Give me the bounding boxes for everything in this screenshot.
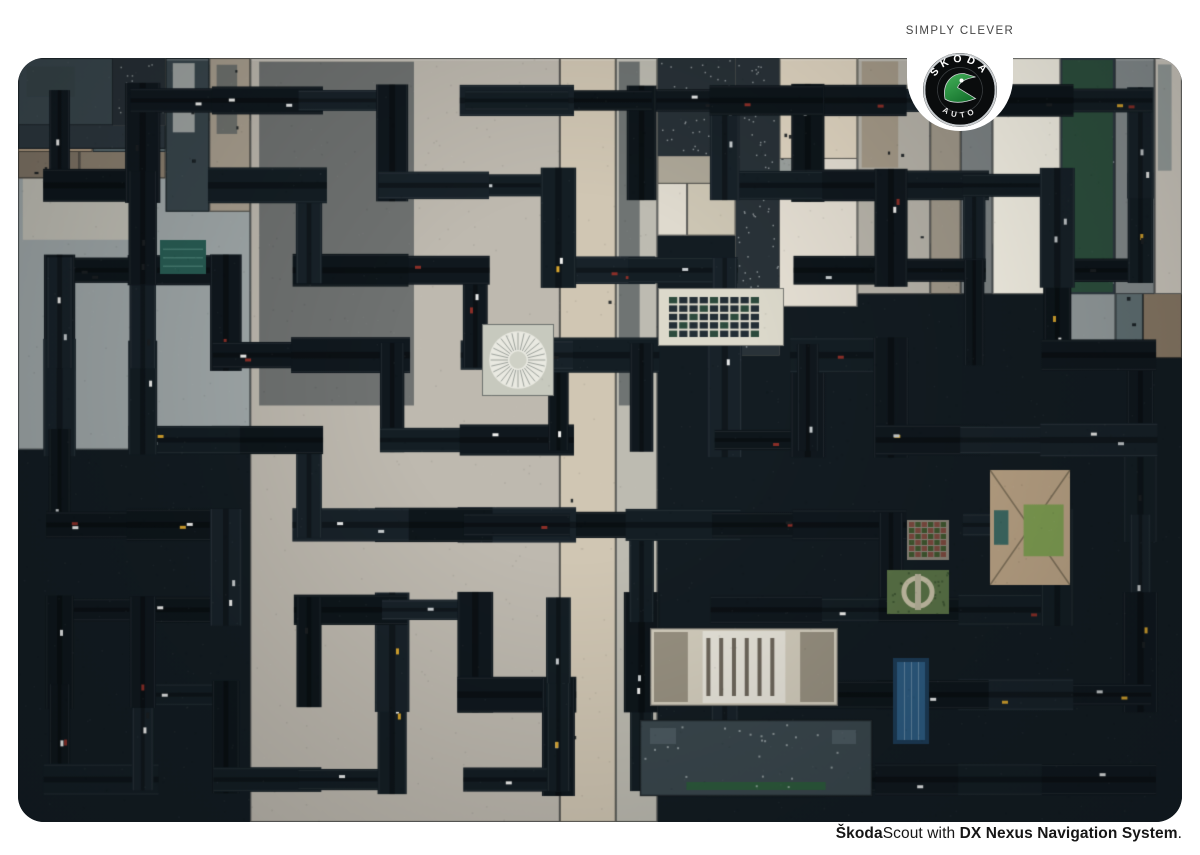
footer-brand: Škoda <box>836 825 883 842</box>
tagline: SIMPLY CLEVER <box>860 25 1060 37</box>
skoda-logo-icon: SKODA AUTO <box>922 52 998 128</box>
footer-model: Scout <box>883 825 923 842</box>
ad-page: SIMPLY CLEVER SKODA AUTO ŠkodaScout <box>0 0 1200 855</box>
footer-caption: ŠkodaScout with DX Nexus Navigation Syst… <box>836 825 1182 843</box>
footer-system: DX Nexus Navigation System <box>960 825 1178 842</box>
city-maze-canvas <box>18 58 1182 822</box>
footer-connector: with <box>923 825 960 842</box>
aerial-city-photo <box>18 58 1182 822</box>
footer-period: . <box>1178 825 1182 842</box>
